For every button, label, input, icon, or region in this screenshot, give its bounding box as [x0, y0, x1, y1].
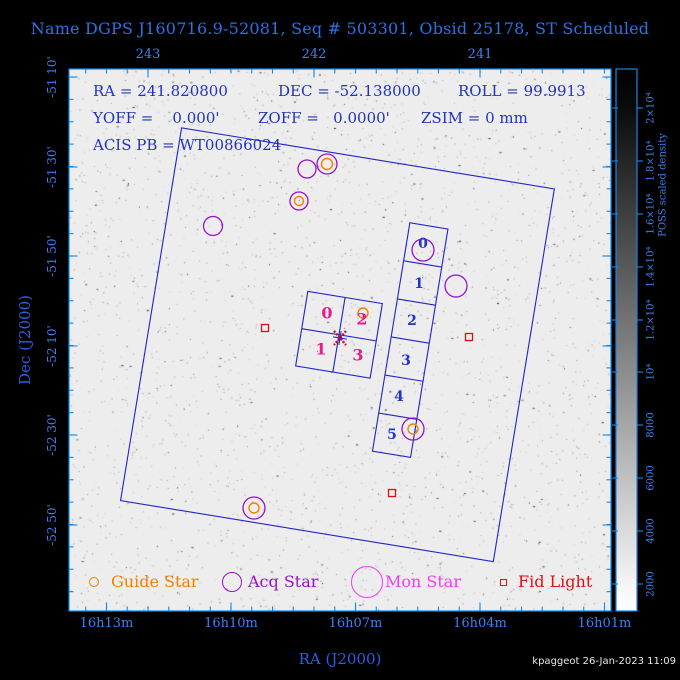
- fid-light-legend-label: Fid Light: [518, 572, 592, 591]
- colorbar-tick-label: 4000: [646, 518, 657, 543]
- obsvis-plot-window: Name DGPS J160716.9-52081, Seq # 503301,…: [0, 0, 680, 680]
- guide-star-circle: [322, 159, 333, 170]
- acq-ring-circle: [402, 418, 424, 440]
- guide-star-legend-label: Guide Star: [111, 572, 199, 591]
- x-top-tick-label: 241: [468, 47, 493, 62]
- fid-light-square: [389, 490, 396, 497]
- acq-star-circle: [204, 217, 223, 236]
- star-symbols: [204, 154, 473, 519]
- colorbar-tick-label: 1.4×10⁴: [646, 246, 657, 287]
- y-axis-title: Dec (J2000): [16, 295, 34, 385]
- y-axis-tick-label: -52 10': [45, 325, 59, 367]
- acis-i-chip-label: 3: [352, 346, 363, 365]
- guide-star-circle: [249, 503, 259, 513]
- acis-s-chip-label: 1: [414, 276, 424, 292]
- acq-star-legend-icon: [222, 572, 242, 592]
- x-axis-tick-label: 16h01m: [578, 616, 632, 631]
- acis-s-chip-divider: [404, 261, 442, 267]
- acis-i-chip-label: 0: [321, 304, 332, 323]
- acis-s-chip-divider: [391, 337, 429, 343]
- acis-s-chip-label: 3: [401, 353, 411, 369]
- mon-star-legend-icon: [351, 566, 383, 598]
- detector-outlines: [121, 128, 555, 562]
- colorbar-tick-label: 2000: [646, 571, 657, 596]
- axis-ticks: [69, 69, 643, 611]
- acq-star-circle: [445, 275, 467, 297]
- colorbar-tick-label: 6000: [646, 465, 657, 490]
- colorbar-tick-label: 10⁴: [646, 364, 657, 381]
- colorbar-tick-label: 1.6×10⁴: [646, 193, 657, 234]
- y-axis-tick-label: -52 50': [45, 504, 59, 546]
- x-top-tick-label: 243: [136, 47, 161, 62]
- x-axis-tick-label: 16h10m: [204, 616, 258, 631]
- acis-s-chip-divider: [397, 299, 435, 305]
- guide-star-circle: [295, 197, 304, 206]
- y-axis-tick-label: -51 30': [45, 146, 59, 188]
- acq-star-legend-label: Acq Star: [248, 572, 318, 591]
- y-axis-tick-label: -52 30': [45, 414, 59, 456]
- tool-credit-timestamp: kpaggeot 26-Jan-2023 11:09: [532, 656, 676, 667]
- colorbar-tick-label: 8000: [646, 412, 657, 437]
- guide-star-circle: [408, 424, 418, 434]
- colorbar-tick-label: 1.2×10⁴: [646, 299, 657, 340]
- acis-s-chip-label: 5: [387, 427, 397, 443]
- colorbar-title: POSS scaled density: [658, 133, 669, 237]
- acis-s-chip-label: 4: [394, 389, 404, 405]
- acq-ring-circle: [243, 497, 265, 519]
- acis-i-chip-label: 1: [315, 340, 326, 359]
- x-axis-tick-label: 16h04m: [453, 616, 507, 631]
- colorbar-tick-label: 1.8×10⁴: [646, 140, 657, 181]
- fid-light-square: [466, 334, 473, 341]
- y-axis-tick-label: -51 50': [45, 235, 59, 277]
- acis-s-chip-label: 2: [407, 313, 417, 329]
- colorbar: [616, 69, 637, 611]
- fid-light-square: [262, 325, 269, 332]
- y-axis-tick-label: -51 10': [45, 56, 59, 98]
- mon-star-legend-label: Mon Star: [385, 572, 461, 591]
- x-axis-tick-label: 16h07m: [329, 616, 383, 631]
- acq-ring-circle: [290, 192, 308, 210]
- colorbar-tick-label: 2×10⁴: [646, 92, 657, 123]
- guide-star-legend-icon: [89, 577, 99, 587]
- acis-i-chip-label: 2: [356, 310, 367, 329]
- acq-ring-circle: [317, 154, 337, 174]
- fid-light-legend-icon: [500, 579, 507, 586]
- x-top-tick-label: 242: [302, 47, 327, 62]
- acis-s-chip-divider: [385, 375, 423, 381]
- acis-s-chip-label: 0: [418, 236, 428, 252]
- acq-star-circle: [298, 160, 316, 178]
- x-axis-tick-label: 16h13m: [80, 616, 134, 631]
